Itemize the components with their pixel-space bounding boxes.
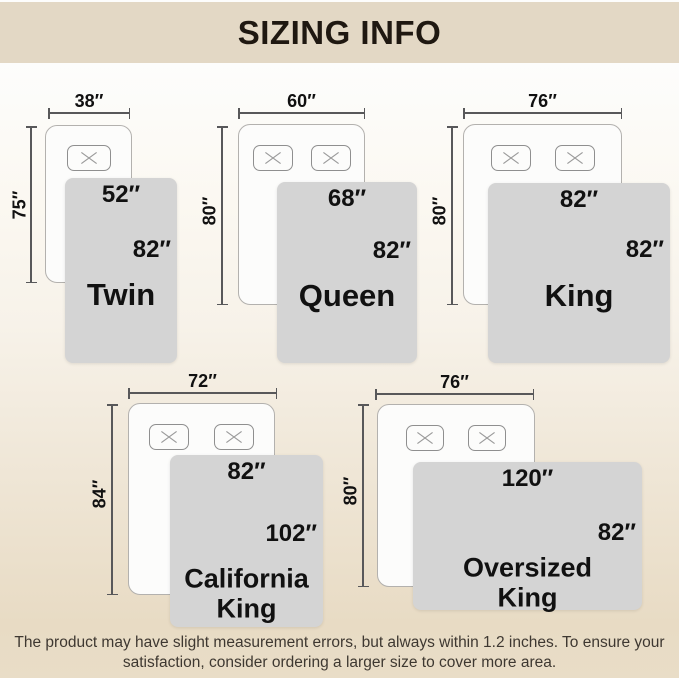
- pillow-icon: [311, 145, 351, 171]
- blanket-width-label: 68″: [277, 185, 417, 213]
- pillow-icon: [491, 145, 531, 171]
- pillow-icon: [253, 145, 293, 171]
- pillow-row: [67, 145, 111, 171]
- blanket-length-label: 82″: [598, 519, 636, 547]
- blanket-length-label: 102″: [265, 520, 317, 548]
- pillow-icon: [406, 425, 444, 451]
- header-bar: SIZING INFO: [0, 2, 679, 63]
- blanket-length-label: 82″: [626, 236, 664, 264]
- size-name: Twin: [87, 277, 155, 313]
- pillow-row: [149, 424, 254, 450]
- width-dimension-line: [463, 112, 622, 114]
- blanket: 82″ 82″ King: [488, 183, 670, 363]
- width-dimension-line: [238, 112, 365, 114]
- pillow-icon: [468, 425, 506, 451]
- pillow-icon: [555, 145, 595, 171]
- length-dimension-line: [362, 404, 364, 587]
- blanket-length-label: 82″: [373, 237, 411, 265]
- width-dimension-line: [128, 392, 277, 394]
- width-dimension-line: [375, 393, 534, 395]
- mattress-length-label: 84″: [90, 480, 111, 509]
- mattress-width-label: 60″: [238, 90, 365, 112]
- pillow-row: [491, 145, 595, 171]
- blanket-width-label: 120″: [413, 465, 642, 493]
- page-title: SIZING INFO: [238, 14, 442, 52]
- blanket: 52″ 82″ Twin: [65, 178, 177, 363]
- length-dimension-line: [111, 404, 113, 595]
- blanket: 120″ 82″ OversizedKing: [413, 462, 642, 610]
- size-name: CaliforniaKing: [184, 565, 309, 624]
- sizing-info-diagram: SIZING INFO 38″ 75″ 52″ 82″ Twin 60″ 80″: [0, 0, 679, 678]
- pillow-icon: [214, 424, 254, 450]
- mattress-width-label: 38″: [48, 90, 130, 112]
- mattress-width-label: 76″: [463, 90, 622, 112]
- pillow-icon: [67, 145, 111, 171]
- blanket-width-label: 82″: [170, 458, 323, 486]
- mattress-length-label: 75″: [10, 191, 31, 220]
- blanket: 68″ 82″ Queen: [277, 182, 417, 363]
- blanket-width-label: 82″: [488, 186, 670, 214]
- blanket-width-label: 52″: [65, 181, 177, 209]
- length-dimension-line: [451, 126, 453, 305]
- pillow-icon: [149, 424, 189, 450]
- pillow-row: [406, 425, 506, 451]
- mattress-width-label: 76″: [375, 371, 534, 393]
- mattress-length-label: 80″: [341, 477, 362, 506]
- size-name: OversizedKing: [463, 554, 592, 613]
- footer-note-line2: satisfaction, consider ordering a larger…: [0, 654, 679, 672]
- size-name: Queen: [299, 278, 395, 314]
- blanket: 82″ 102″ CaliforniaKing: [170, 455, 323, 627]
- mattress-length-label: 80″: [200, 197, 221, 226]
- mattress-length-label: 80″: [430, 197, 451, 226]
- footer-note-line1: The product may have slight measurement …: [0, 634, 679, 652]
- mattress-width-label: 72″: [128, 370, 277, 392]
- width-dimension-line: [48, 112, 130, 114]
- pillow-row: [253, 145, 351, 171]
- size-name: King: [545, 278, 614, 314]
- blanket-length-label: 82″: [133, 236, 171, 264]
- length-dimension-line: [221, 126, 223, 305]
